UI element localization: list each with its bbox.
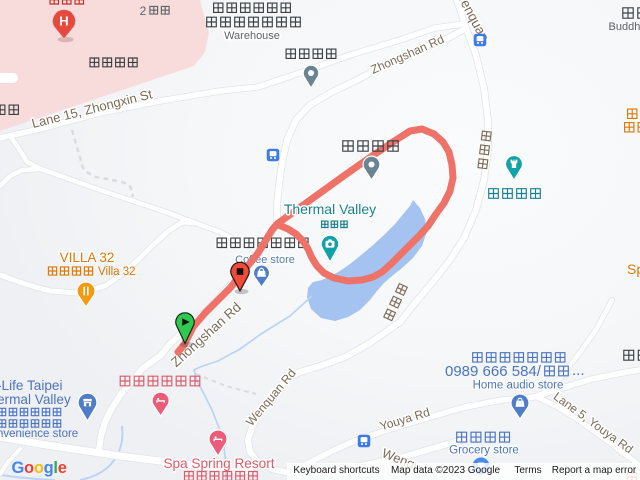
- svg-text:Buddhist Te: Buddhist Te: [609, 21, 640, 33]
- svg-text:ermal Valley: ermal Valley: [0, 392, 71, 407]
- svg-text:-Life Taipei: -Life Taipei: [0, 378, 63, 393]
- svg-text:Grocery store: Grocery store: [449, 445, 519, 457]
- svg-text:Spa Spring Resort: Spa Spring Resort: [163, 456, 274, 471]
- svg-text:Terms: Terms: [514, 465, 541, 476]
- svg-text:Google: Google: [12, 459, 67, 477]
- svg-text:nvenience store: nvenience store: [0, 428, 78, 440]
- svg-text:...: ...: [572, 362, 585, 379]
- svg-text:VILLA 32: VILLA 32: [60, 250, 115, 265]
- svg-text:2: 2: [140, 4, 147, 18]
- svg-text:Warehouse: Warehouse: [224, 30, 280, 42]
- svg-text:Keyboard shortcuts: Keyboard shortcuts: [293, 465, 379, 476]
- svg-text:Map data ©2023 Google: Map data ©2023 Google: [391, 465, 501, 476]
- svg-text:Villa 32: Villa 32: [98, 266, 136, 278]
- svg-text:H: H: [59, 14, 68, 29]
- svg-text:Thermal Valley: Thermal Valley: [284, 201, 376, 217]
- svg-text:Report a map error: Report a map error: [552, 465, 637, 476]
- svg-text:0989 666 584/: 0989 666 584/: [445, 363, 542, 380]
- svg-text:Sp: Sp: [627, 261, 640, 277]
- svg-text:Home audio store: Home audio store: [473, 380, 564, 392]
